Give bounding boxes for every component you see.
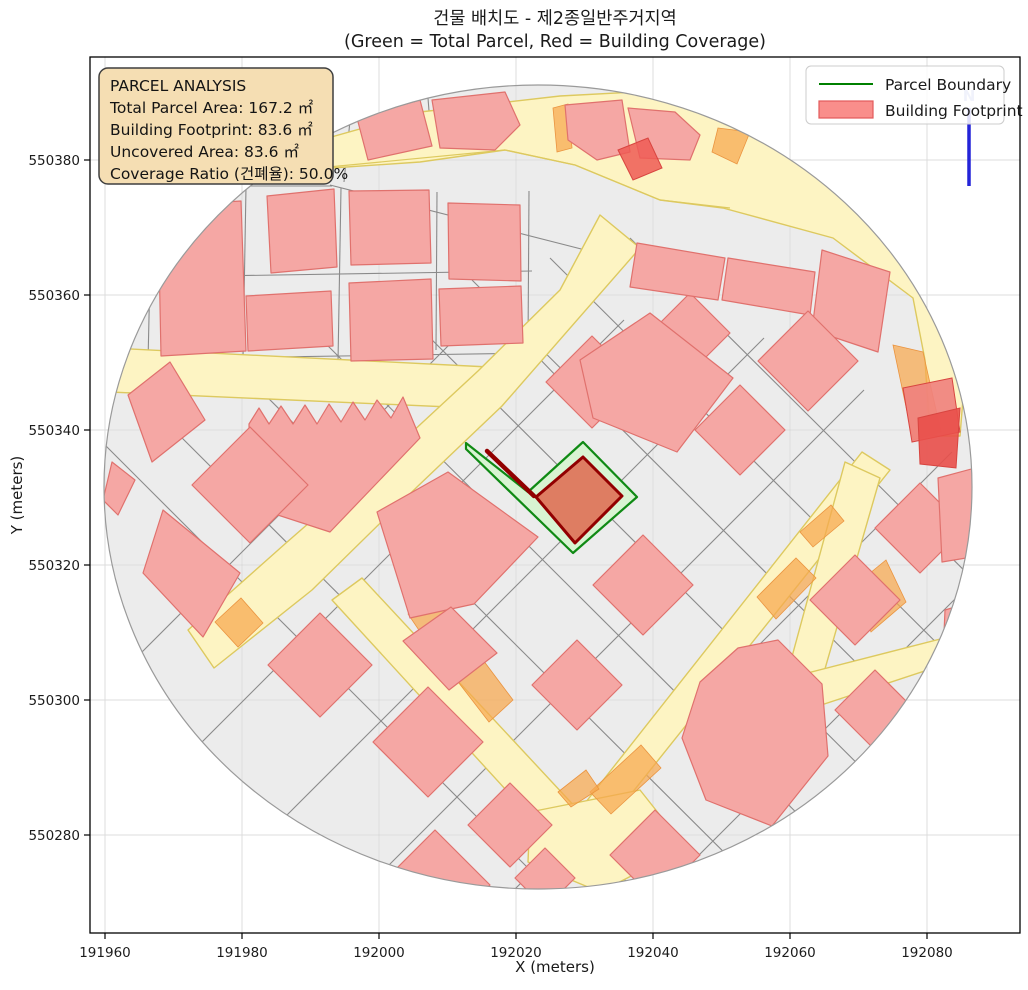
legend-label-parcel-boundary: Parcel Boundary xyxy=(885,76,1011,94)
x-tick-label: 191960 xyxy=(79,945,131,961)
y-tick-label: 550340 xyxy=(28,423,80,439)
x-tick-label: 192040 xyxy=(627,945,679,961)
building-polygon xyxy=(246,291,333,351)
legend-patch-sample xyxy=(819,101,873,118)
annotation-line-3: Building Footprint: 83.6 ㎡ xyxy=(110,121,313,139)
x-tick-label: 192000 xyxy=(353,945,405,961)
plot-title: 건물 배치도 - 제2종일반주거지역 xyxy=(433,9,676,29)
x-axis-label: X (meters) xyxy=(515,958,595,976)
annotation-line-4: Uncovered Area: 83.6 ㎡ xyxy=(110,143,299,161)
building-layout-plot: N Parcel Boundary Building Footprint PAR… xyxy=(0,0,1028,990)
x-tick-label: 191980 xyxy=(216,945,268,961)
x-tick-label: 192060 xyxy=(764,945,816,961)
y-tick-label: 550300 xyxy=(28,693,80,709)
building-polygon xyxy=(439,286,523,346)
annotation-line-1: PARCEL ANALYSIS xyxy=(110,77,246,95)
building-polygon xyxy=(448,203,521,281)
legend: Parcel Boundary Building Footprint xyxy=(806,66,1023,124)
legend-label-building-footprint: Building Footprint xyxy=(885,102,1023,120)
figure: N Parcel Boundary Building Footprint PAR… xyxy=(0,0,1028,990)
annotation-line-2: Total Parcel Area: 167.2 ㎡ xyxy=(109,99,314,117)
building-polygon xyxy=(349,190,431,265)
y-tick-label: 550320 xyxy=(28,558,80,574)
y-tick-label: 550280 xyxy=(28,828,80,844)
red-building-polygon xyxy=(918,408,960,468)
plot-subtitle: (Green = Total Parcel, Red = Building Co… xyxy=(344,32,766,52)
y-tick-label: 550360 xyxy=(28,288,80,304)
y-axis-label: Y (meters) xyxy=(8,456,26,536)
y-tick-label: 550380 xyxy=(28,153,80,169)
parcel-analysis-annotation: PARCEL ANALYSIS Total Parcel Area: 167.2… xyxy=(99,68,348,184)
x-tick-label: 192080 xyxy=(901,945,953,961)
annotation-line-5: Coverage Ratio (건폐율): 50.0% xyxy=(110,165,348,183)
building-polygon xyxy=(349,279,433,361)
building-polygon xyxy=(267,189,337,273)
